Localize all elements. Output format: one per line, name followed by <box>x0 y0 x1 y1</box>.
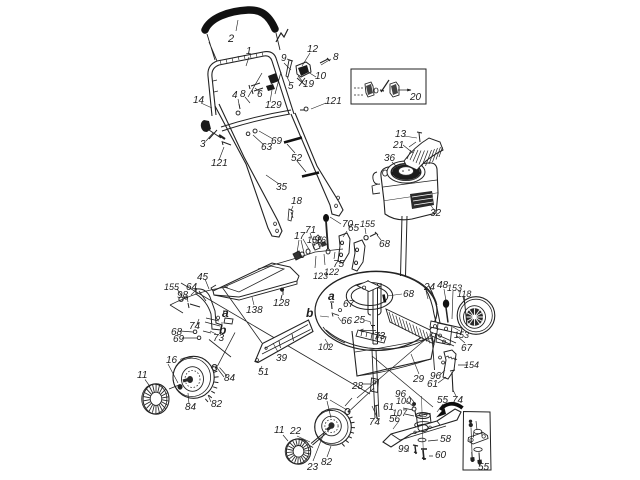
svg-text:11: 11 <box>137 370 147 381</box>
svg-text:58: 58 <box>440 434 452 445</box>
svg-text:75: 75 <box>333 259 345 270</box>
svg-text:128: 128 <box>273 298 290 309</box>
svg-text:74: 74 <box>369 417 381 428</box>
svg-text:29: 29 <box>412 374 425 385</box>
svg-text:4: 4 <box>232 90 238 101</box>
svg-text:69: 69 <box>271 136 283 147</box>
svg-text:153: 153 <box>454 330 469 340</box>
svg-text:1: 1 <box>246 46 252 57</box>
svg-text:56: 56 <box>389 414 401 425</box>
svg-text:65: 65 <box>348 223 360 234</box>
svg-text:16: 16 <box>316 235 326 245</box>
svg-text:24: 24 <box>423 282 436 293</box>
svg-text:67: 67 <box>343 299 355 310</box>
svg-text:52: 52 <box>291 153 303 164</box>
svg-text:74: 74 <box>189 321 201 332</box>
svg-text:10: 10 <box>315 71 327 82</box>
svg-text:8: 8 <box>333 52 339 63</box>
svg-text:a: a <box>222 306 229 320</box>
svg-text:3: 3 <box>200 139 206 150</box>
svg-text:73: 73 <box>374 331 386 342</box>
svg-text:13: 13 <box>395 129 407 140</box>
svg-text:68: 68 <box>379 239 391 250</box>
svg-text:118: 118 <box>457 289 471 299</box>
svg-text:20: 20 <box>409 92 422 103</box>
svg-text:138: 138 <box>246 305 263 316</box>
svg-text:12: 12 <box>307 44 319 55</box>
svg-text:b: b <box>306 306 313 320</box>
svg-text:32: 32 <box>430 208 442 219</box>
svg-text:2: 2 <box>227 33 234 45</box>
svg-text:39: 39 <box>276 353 288 364</box>
svg-text:82: 82 <box>321 457 333 468</box>
svg-text:82: 82 <box>211 399 223 410</box>
svg-text:98: 98 <box>177 290 189 301</box>
svg-text:19: 19 <box>303 79 315 90</box>
svg-text:69: 69 <box>173 334 185 345</box>
svg-text:28: 28 <box>351 381 364 392</box>
svg-text:84: 84 <box>317 392 329 403</box>
svg-text:36: 36 <box>384 153 396 164</box>
svg-text:9: 9 <box>281 53 287 64</box>
svg-text:8: 8 <box>240 89 246 100</box>
svg-text:6: 6 <box>257 89 263 100</box>
svg-text:18: 18 <box>291 196 303 207</box>
svg-text:121: 121 <box>325 96 342 107</box>
svg-text:b: b <box>219 323 226 337</box>
svg-text:21: 21 <box>392 140 404 151</box>
svg-text:61: 61 <box>427 379 438 390</box>
svg-text:121: 121 <box>211 158 228 169</box>
svg-text:35: 35 <box>276 182 288 193</box>
svg-text:23: 23 <box>306 462 319 473</box>
svg-text:60: 60 <box>435 450 447 461</box>
svg-text:16: 16 <box>166 355 178 366</box>
svg-text:22: 22 <box>289 426 302 437</box>
svg-text:45: 45 <box>197 272 209 283</box>
svg-text:100: 100 <box>396 396 411 406</box>
svg-text:55: 55 <box>437 395 449 406</box>
svg-text:155: 155 <box>360 219 376 229</box>
svg-text:129: 129 <box>265 100 282 111</box>
svg-text:68: 68 <box>403 289 415 300</box>
svg-text:99: 99 <box>398 444 410 455</box>
svg-text:51: 51 <box>258 367 269 378</box>
svg-text:a: a <box>328 289 335 303</box>
svg-text:5: 5 <box>288 81 294 92</box>
svg-text:25: 25 <box>353 315 366 326</box>
svg-text:66: 66 <box>341 316 353 327</box>
svg-text:11: 11 <box>274 425 284 436</box>
svg-text:55: 55 <box>478 462 490 473</box>
svg-text:102: 102 <box>318 342 333 352</box>
svg-text:154: 154 <box>464 360 479 370</box>
svg-text:14: 14 <box>193 95 205 106</box>
svg-text:67: 67 <box>461 343 473 354</box>
svg-text:84: 84 <box>185 402 197 413</box>
svg-text:84: 84 <box>224 373 236 384</box>
svg-text:17: 17 <box>294 231 306 242</box>
